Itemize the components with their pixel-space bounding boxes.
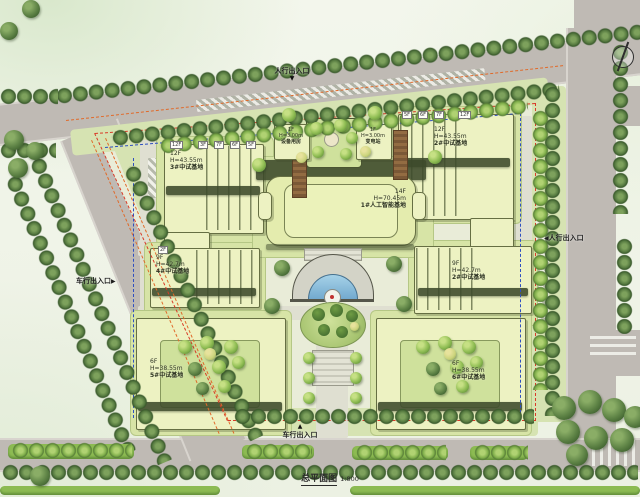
- shrub: [336, 326, 348, 338]
- building-floors: 9F: [156, 254, 214, 261]
- tree: [310, 122, 323, 135]
- shrub: [318, 324, 330, 336]
- building-floors: 12F: [170, 150, 228, 157]
- building-name: 1#人工智能基地: [318, 202, 406, 209]
- building-label-1: 14F H=70.45m 1#人工智能基地: [318, 188, 406, 209]
- tree: [602, 398, 626, 422]
- tree: [340, 148, 352, 160]
- tree: [224, 340, 238, 354]
- tree: [350, 372, 362, 384]
- tree: [296, 152, 307, 163]
- north-arrow-icon: [610, 44, 636, 70]
- tree-row: [12, 442, 132, 459]
- building-2-wing: [470, 218, 514, 248]
- floor-tag: 7F: [434, 111, 444, 119]
- building-height: H=70.45m: [318, 195, 406, 202]
- tree: [178, 340, 192, 354]
- building-label-equipment: 1F H=3.00m 设备用房: [274, 127, 308, 145]
- tree: [312, 146, 324, 158]
- building-label-6: 6F H=38.55m 6#中试基地: [452, 360, 510, 381]
- building-label-5: 6F H=38.55m 5#中试基地: [150, 358, 208, 379]
- building-shadow: [166, 186, 260, 195]
- floor-tag: 2F: [158, 246, 168, 254]
- tree: [303, 392, 315, 404]
- floor-tag: 12F: [458, 111, 471, 119]
- building-height: H=43.55m: [434, 133, 494, 140]
- tree: [303, 352, 315, 364]
- crosswalk: [590, 336, 636, 356]
- tree: [350, 322, 359, 331]
- building-label-2-wing: 9F H=42.7m 2#中试基地: [452, 260, 512, 281]
- building-floors: 14F: [318, 188, 406, 195]
- building-name: 2#中试基地: [452, 274, 512, 281]
- tree-row: [474, 444, 528, 461]
- building-shadow: [418, 288, 528, 296]
- tree: [456, 380, 469, 393]
- tree: [610, 428, 634, 452]
- tree: [556, 420, 580, 444]
- plan-scale: 1:800: [340, 475, 359, 483]
- building-name: 4#中试基地: [156, 268, 214, 275]
- entrance-left: 车行出入口▶: [76, 276, 116, 286]
- tree: [196, 382, 209, 395]
- building-label-3: 12F H=43.55m 3#中试基地: [170, 150, 228, 171]
- shrub: [312, 308, 325, 321]
- building-1-tab: [258, 192, 272, 220]
- entrance-top: 人行出入口 ▼: [248, 66, 336, 82]
- tree: [624, 406, 640, 428]
- tree: [264, 298, 280, 314]
- tree: [8, 158, 28, 178]
- plan-title: 总平面图: [301, 474, 337, 486]
- tree: [434, 382, 447, 395]
- building-name: 变电站: [356, 139, 390, 145]
- entrance-bottom: ▲ 车行出入口: [262, 424, 338, 440]
- building-name: 5#中试基地: [150, 372, 208, 379]
- floor-tag: 3F: [198, 141, 208, 149]
- setback-line: [520, 113, 521, 418]
- building-floors: 6F: [452, 360, 510, 367]
- shrub: [330, 304, 343, 317]
- building-name: 3#中试基地: [170, 164, 228, 171]
- fountain-dot: [330, 295, 334, 299]
- tree: [350, 392, 362, 404]
- tree: [232, 356, 245, 369]
- building-height: H=38.55m: [452, 367, 510, 374]
- building-name: 6#中试基地: [452, 374, 510, 381]
- entrance-marker-icon: ▶: [111, 278, 116, 285]
- tree: [584, 426, 608, 450]
- tree: [4, 130, 24, 150]
- shrub: [346, 310, 358, 322]
- entrance-marker-icon: ▼: [248, 76, 336, 82]
- floor-tag: 12F: [170, 141, 183, 149]
- hedge-strip: [0, 486, 220, 495]
- tree-row: [234, 408, 534, 425]
- tree: [566, 444, 588, 466]
- entrance-label: 车行出入口: [262, 430, 338, 440]
- building-height: H=42.7m: [452, 267, 512, 274]
- building-1-tab: [412, 192, 426, 220]
- tree: [552, 396, 576, 420]
- site-plan-canvas: 12F 7F 6F 5F 3F 5F 6F 7F 12F 2F 1F H=3.0…: [0, 0, 640, 497]
- tree: [444, 348, 456, 360]
- floor-tag: 6F: [418, 111, 428, 119]
- building-floors: 6F: [150, 358, 208, 365]
- plan-title-block: 总平面图1:800: [240, 466, 420, 485]
- tree: [303, 372, 315, 384]
- building-name: 2#中试基地: [434, 140, 494, 147]
- building-height: H=43.55m: [170, 157, 228, 164]
- entrance-right: ◀人行出入口: [544, 233, 584, 243]
- building-name: 设备用房: [274, 139, 308, 145]
- tree: [282, 108, 296, 122]
- tree: [26, 142, 44, 160]
- terraced-steps: [312, 350, 354, 386]
- tree: [462, 340, 476, 354]
- tree: [274, 260, 290, 276]
- tree: [416, 340, 430, 354]
- tree: [30, 466, 50, 486]
- building-label-2: 12F H=43.55m 2#中试基地: [434, 126, 494, 147]
- tree: [396, 296, 412, 312]
- tree: [578, 390, 602, 414]
- building-label-4: 9F H=42.7m 4#中试基地: [156, 254, 214, 275]
- floor-tag: 5F: [246, 141, 256, 149]
- tree: [252, 158, 266, 172]
- tree: [0, 22, 18, 40]
- building-floors: 9F: [452, 260, 512, 267]
- building-label-substation: 1F H=3.00m 变电站: [356, 127, 390, 145]
- tree: [386, 256, 402, 272]
- tree: [426, 362, 440, 376]
- hedge-strip: [350, 486, 640, 495]
- tree: [428, 150, 442, 164]
- entrance-label: 人行出入口: [549, 234, 584, 242]
- floor-tag: 6F: [230, 141, 240, 149]
- building-height: H=38.55m: [150, 365, 208, 372]
- building-floors: 12F: [434, 126, 494, 133]
- tree: [212, 360, 226, 374]
- building-height: H=42.7m: [156, 261, 214, 268]
- tree-row: [246, 443, 312, 460]
- tree: [368, 106, 382, 120]
- floor-tag: 7F: [214, 141, 224, 149]
- tree-row: [532, 110, 549, 390]
- tree: [360, 146, 371, 157]
- tree-row: [616, 238, 633, 334]
- tree: [350, 352, 362, 364]
- entrance-label: 车行出入口: [76, 277, 111, 285]
- tree: [22, 0, 40, 18]
- tree: [334, 119, 347, 132]
- floor-tag: 5F: [402, 111, 412, 119]
- tree-row: [356, 444, 446, 461]
- tree-row: [0, 88, 58, 105]
- tree: [218, 380, 231, 393]
- pergola: [393, 130, 408, 180]
